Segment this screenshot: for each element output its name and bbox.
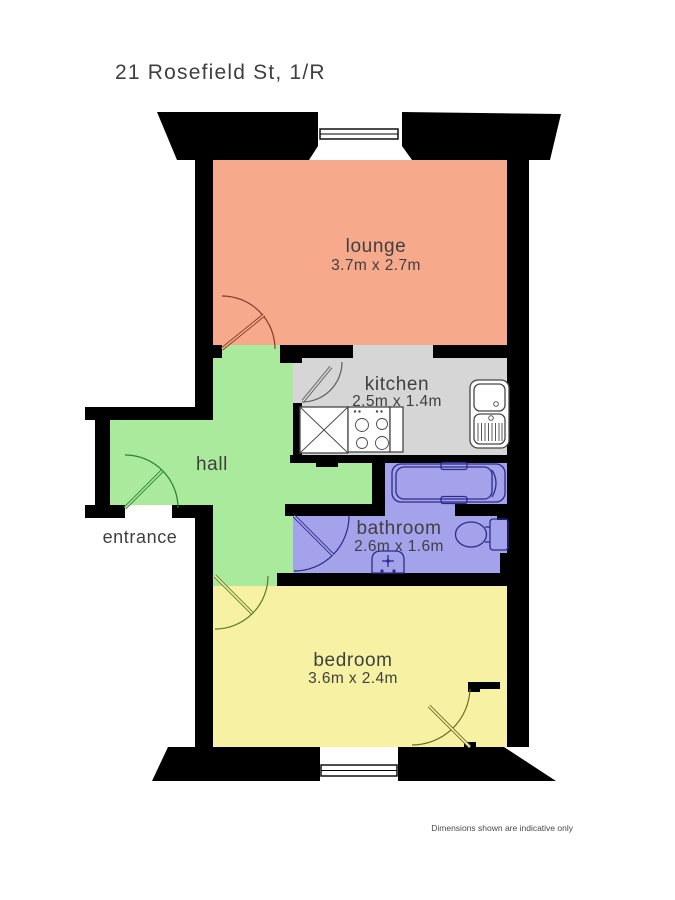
kitchen-label: kitchen — [365, 374, 429, 395]
page-title: 21 Rosefield St, 1/R — [115, 61, 326, 84]
wall-lounge-stub — [280, 345, 302, 363]
wall-bathroom-step — [500, 553, 518, 573]
lounge-dims: 3.7m x 2.7m — [331, 257, 421, 274]
kitchen-hob — [348, 407, 403, 452]
floor-plan: 21 Rosefield St, 1/R — [0, 0, 675, 900]
kitchen-dims: 2.5m x 1.4m — [352, 393, 442, 410]
wall-lounge-bottom-c — [433, 345, 507, 358]
wall-lounge-bottom-b — [302, 345, 353, 358]
kitchen-archway-floor — [353, 345, 433, 358]
wall-nook-pier — [316, 455, 338, 467]
bathroom-label: bathroom — [356, 518, 441, 539]
hall-label: hall — [196, 454, 228, 475]
lounge-label: lounge — [346, 236, 407, 257]
bathroom-dims: 2.6m x 1.6m — [354, 538, 444, 555]
wall-entrance-bottom-left — [85, 505, 125, 518]
disclaimer-text: Dimensions shown are indicative only — [431, 823, 573, 833]
top-window — [318, 112, 402, 146]
wall-top-left — [157, 112, 318, 160]
wall-bottom-right — [398, 747, 556, 781]
kitchen-counter-unit — [300, 407, 348, 453]
wall-left-upper — [195, 160, 213, 407]
wall-right — [507, 160, 529, 747]
wall-bedroom-top — [277, 573, 507, 586]
wall-entrance-arm-left — [95, 420, 110, 505]
bedroom-label: bedroom — [313, 650, 392, 671]
kitchen-sink — [470, 380, 509, 448]
wall-top-right — [402, 112, 561, 160]
bedroom-dims: 3.6m x 2.4m — [308, 670, 398, 687]
wall-toilet-step — [497, 504, 512, 520]
entrance-label: entrance — [103, 527, 178, 547]
wall-left-lower — [195, 518, 213, 747]
wall-nook-bath-divider — [372, 455, 385, 516]
wall-bath-band-left — [285, 504, 372, 516]
bottom-window — [320, 747, 398, 781]
wall-bottom-left — [152, 747, 320, 781]
floor-plan-page: 21 Rosefield St, 1/R — [0, 0, 675, 900]
wall-lounge-bottom-a — [213, 345, 222, 358]
wall-entrance-arm-top — [85, 407, 213, 420]
